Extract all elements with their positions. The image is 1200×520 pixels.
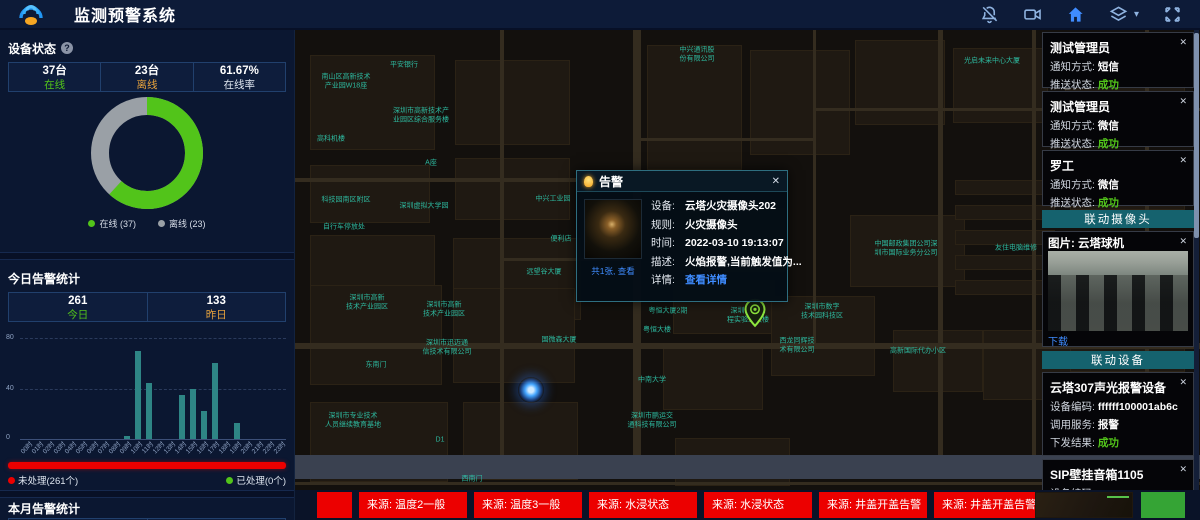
top-header: 监测预警系统 ▾ <box>0 0 1200 30</box>
alert-source-item[interactable]: 来源: 井盖开盖告警 <box>819 492 927 518</box>
notify-status: 推送状态: 成功 <box>1050 136 1186 151</box>
processed-label: 已处理(0个) <box>226 473 286 487</box>
map-label: 深圳市高新 技术产业园区 <box>423 301 465 319</box>
map-label: 平安银行 <box>390 62 418 71</box>
popup-field-device: 设备:云塔火灾摄像头202 <box>651 199 802 213</box>
linked-device-card: ✕ SIP壁挂音箱1105 设备编码: 1105 <box>1042 459 1194 490</box>
device-title: SIP壁挂音箱1105 <box>1050 466 1186 483</box>
map-label: 自行车停放处 <box>323 224 365 233</box>
map-label: 国微森大厦 <box>542 337 577 346</box>
sidebar-scrollbar <box>1194 30 1199 490</box>
close-icon[interactable]: ✕ <box>1179 377 1187 388</box>
alert-source-item[interactable]: 来源: 水浸状态 <box>704 492 812 518</box>
donut-legend: 在线 (37) 离线 (23) <box>0 216 294 230</box>
map-building <box>955 205 1055 220</box>
linked-devices-header[interactable]: 联动设备 <box>1042 351 1194 369</box>
map-building <box>455 60 570 145</box>
map-building <box>647 45 742 170</box>
alarm-location-pulse[interactable] <box>518 377 544 403</box>
map-building <box>310 165 430 223</box>
fullscreen-icon[interactable] <box>1163 5 1182 24</box>
gridline <box>20 389 286 390</box>
device-status-donut-chart <box>90 96 204 210</box>
device-status-stats: 37台 在线 23台 离线 61.67% 在线率 <box>8 62 286 92</box>
device-code: 设备编码: ffffff100001ab6c <box>1050 399 1186 414</box>
map-label: 深圳市鹏运交 通科技有限公司 <box>628 412 677 430</box>
notification-card: ✕ 测试管理员 通知方式: 微信 推送状态: 成功 <box>1042 91 1194 147</box>
map-label: A座 <box>425 160 437 169</box>
map-label: 粤恒大楼 <box>643 327 671 336</box>
alarm-popup-title: 告警 <box>599 173 623 190</box>
map-label: D1 <box>436 437 445 446</box>
legend-online: 在线 (37) <box>88 217 136 230</box>
stat-yesterday: 133 昨日 <box>148 293 286 321</box>
map-label: 高科机楼 <box>317 136 345 145</box>
app-logo-icon <box>18 2 44 26</box>
alarm-snapshot-image[interactable] <box>584 199 642 259</box>
map-road <box>938 30 943 455</box>
bar <box>190 389 196 440</box>
notify-method: 通知方式: 短信 <box>1050 59 1186 74</box>
map-road <box>635 138 815 141</box>
device-result: 下发结果: 成功 <box>1050 435 1186 450</box>
linked-device-card: ✕ 云塔307声光报警设备 设备编码: ffffff100001ab6c 调用服… <box>1042 372 1194 456</box>
bar <box>179 395 185 439</box>
map-label: 深圳市高新技术产 业园区综合服务楼 <box>393 107 449 125</box>
map-building <box>855 40 945 125</box>
hourly-alarm-bar-chart: 80 40 0 00时01时02时03时04时05时06时07时08时09时10… <box>4 326 290 444</box>
map-label: 深圳市迅迈通 信技术有限公司 <box>423 339 472 357</box>
unprocessed-progress-bar <box>8 462 286 469</box>
map-label: 深圳虚拟大学园 <box>400 203 449 212</box>
camera-image-title: 图片: 云塔球机 <box>1048 235 1188 251</box>
map-label: 东南门 <box>366 362 387 371</box>
unprocessed-label: 未处理(261个) <box>8 473 78 487</box>
bell-mute-icon[interactable] <box>980 5 999 24</box>
map-label: 中南大学 <box>638 377 666 386</box>
close-icon[interactable]: ✕ <box>1179 96 1187 107</box>
popup-field-rule: 规则:火灾摄像头 <box>651 218 802 232</box>
y-tick: 0 <box>6 434 10 441</box>
notify-status: 推送状态: 成功 <box>1050 77 1186 92</box>
map-building <box>955 180 1055 195</box>
map-label: 中兴通讯股 份有限公司 <box>680 46 715 64</box>
popup-field-detail: 详情:查看详情 <box>651 273 802 287</box>
map-label: 友住电脑维修 <box>995 245 1037 254</box>
device-status-title: 设备状态 ? <box>8 40 286 56</box>
chevron-down-icon[interactable]: ▾ <box>1134 9 1139 20</box>
map-label: 光启未来中心大厦 <box>964 58 1020 67</box>
popup-field-time: 时间:2022-03-10 19:13:07 <box>651 236 802 250</box>
notify-status: 推送状态: 成功 <box>1050 195 1186 210</box>
close-icon[interactable]: ✕ <box>1179 155 1187 166</box>
stat-online-rate: 61.67% 在线率 <box>194 63 285 91</box>
bar <box>135 351 141 439</box>
device-title: 云塔307声光报警设备 <box>1050 379 1186 396</box>
bar <box>212 363 218 439</box>
notify-recipient: 测试管理员 <box>1050 39 1186 56</box>
alarm-snapshot: 共1张, 查看 <box>584 199 642 292</box>
stat-offline: 23台 离线 <box>101 63 193 91</box>
gridline <box>20 338 286 339</box>
map-label: 西龙同辉技 术有限公司 <box>780 337 815 355</box>
video-thumbnail-2[interactable] <box>1141 492 1185 518</box>
map-label: 中国邮政集团公司深 圳市国际业务分公司 <box>875 240 938 258</box>
linked-camera-card: ✕ 图片: 云塔球机 下载 <box>1042 231 1194 347</box>
close-icon[interactable]: ✕ <box>1179 464 1187 475</box>
map-label: 远望谷大厦 <box>527 269 562 278</box>
month-alarms-title: 本月告警统计 <box>8 500 286 516</box>
video-thumbnail-1[interactable] <box>1035 492 1133 518</box>
map-building <box>955 230 1055 245</box>
map-building <box>455 158 570 220</box>
alert-item-partial[interactable] <box>317 492 352 518</box>
linked-camera-header[interactable]: 联动摄像头 <box>1042 210 1194 228</box>
map-label: 高新国际代办小区 <box>890 348 946 357</box>
layers-icon[interactable] <box>1109 5 1128 24</box>
map-road <box>813 30 816 345</box>
view-detail-link[interactable]: 查看详情 <box>685 273 727 287</box>
device-service: 调用服务: 报警 <box>1050 417 1186 432</box>
y-tick: 80 <box>6 334 14 341</box>
today-alarms-title: 今日告警统计 <box>8 270 286 286</box>
stat-online: 37台 在线 <box>9 63 101 91</box>
alert-source-item[interactable]: 来源: 温度3一般 <box>474 492 582 518</box>
map-label: 深圳市数字 技术园科技区 <box>801 303 843 321</box>
download-link[interactable]: 下载 <box>1048 333 1068 348</box>
notify-method: 通知方式: 微信 <box>1050 177 1186 192</box>
notification-card: ✕ 罗工 通知方式: 微信 推送状态: 成功 <box>1042 150 1194 206</box>
popup-close-icon[interactable]: ✕ <box>772 176 780 187</box>
video-camera-icon[interactable] <box>1023 5 1042 24</box>
legend-offline: 离线 (23) <box>158 217 206 230</box>
alert-source-item[interactable]: 来源: 温度2一般 <box>359 492 467 518</box>
close-icon[interactable]: ✕ <box>1179 37 1187 48</box>
notify-recipient: 测试管理员 <box>1050 98 1186 115</box>
notify-recipient: 罗工 <box>1050 157 1186 174</box>
bottom-alert-ticker: 来源: 温度2一般来源: 温度3一般来源: 水浸状态来源: 水浸状态来源: 井盖… <box>295 490 1200 520</box>
right-sidebar: ✕ 测试管理员 通知方式: 短信 推送状态: 成功 ✕ 测试管理员 通知方式: … <box>1042 30 1194 490</box>
map-label: 深圳市高新 技术产业园区 <box>346 294 388 312</box>
left-stats-panel: 设备状态 ? 37台 在线 23台 离线 61.67% 在线率 在线 (37) … <box>0 30 295 520</box>
scrollbar-thumb[interactable] <box>1194 33 1199 238</box>
map-label: 中兴工业园 <box>536 196 571 205</box>
notification-card: ✕ 测试管理员 通知方式: 短信 推送状态: 成功 <box>1042 32 1194 88</box>
bar <box>146 383 152 439</box>
selected-location-pin[interactable] <box>742 298 768 333</box>
map-building <box>453 288 575 383</box>
info-icon[interactable]: ? <box>61 42 73 54</box>
alarm-bulb-icon <box>584 176 593 187</box>
section-divider <box>0 490 294 498</box>
map-building <box>955 255 1055 270</box>
home-icon[interactable] <box>1066 5 1085 24</box>
map-building <box>955 280 1055 295</box>
alarm-popup: 告警 ✕ 共1张, 查看 设备:云塔火灾摄像头202 规则:火灾摄像头 时间:2… <box>576 170 788 302</box>
map-road <box>500 30 504 455</box>
progress-legend: 未处理(261个) 已处理(0个) <box>8 474 286 486</box>
map-building <box>663 348 763 410</box>
camera-snapshot-image[interactable] <box>1048 251 1188 331</box>
map-label: 深圳市专业技术 人员继续教育基地 <box>325 412 381 430</box>
map-label: 西南门 <box>462 476 483 485</box>
map-road <box>1032 30 1036 455</box>
map-label: 便利店 <box>551 236 572 245</box>
page-title: 监测预警系统 <box>74 2 176 26</box>
popup-field-description: 描述:火焰报警,当前触发值为... <box>651 255 802 269</box>
stat-today: 261 今日 <box>9 293 148 321</box>
close-icon[interactable]: ✕ <box>1179 236 1187 247</box>
map-label: 南山区高新技术 产业园W18座 <box>322 73 371 91</box>
section-divider <box>0 252 294 260</box>
map-label: 粤恒大厦2期 <box>649 308 688 317</box>
alarm-popup-header: 告警 ✕ <box>577 171 787 192</box>
notify-method: 通知方式: 微信 <box>1050 118 1186 133</box>
snapshot-view-link[interactable]: 共1张, 查看 <box>584 265 642 277</box>
alert-source-item[interactable]: 来源: 水浸状态 <box>589 492 697 518</box>
alert-source-item[interactable]: 来源: 井盖开盖告警 <box>934 492 1042 518</box>
today-alarm-stats: 261 今日 133 昨日 <box>8 292 286 322</box>
map-label: 科技园南区附区 <box>322 197 371 206</box>
y-tick: 40 <box>6 385 14 392</box>
